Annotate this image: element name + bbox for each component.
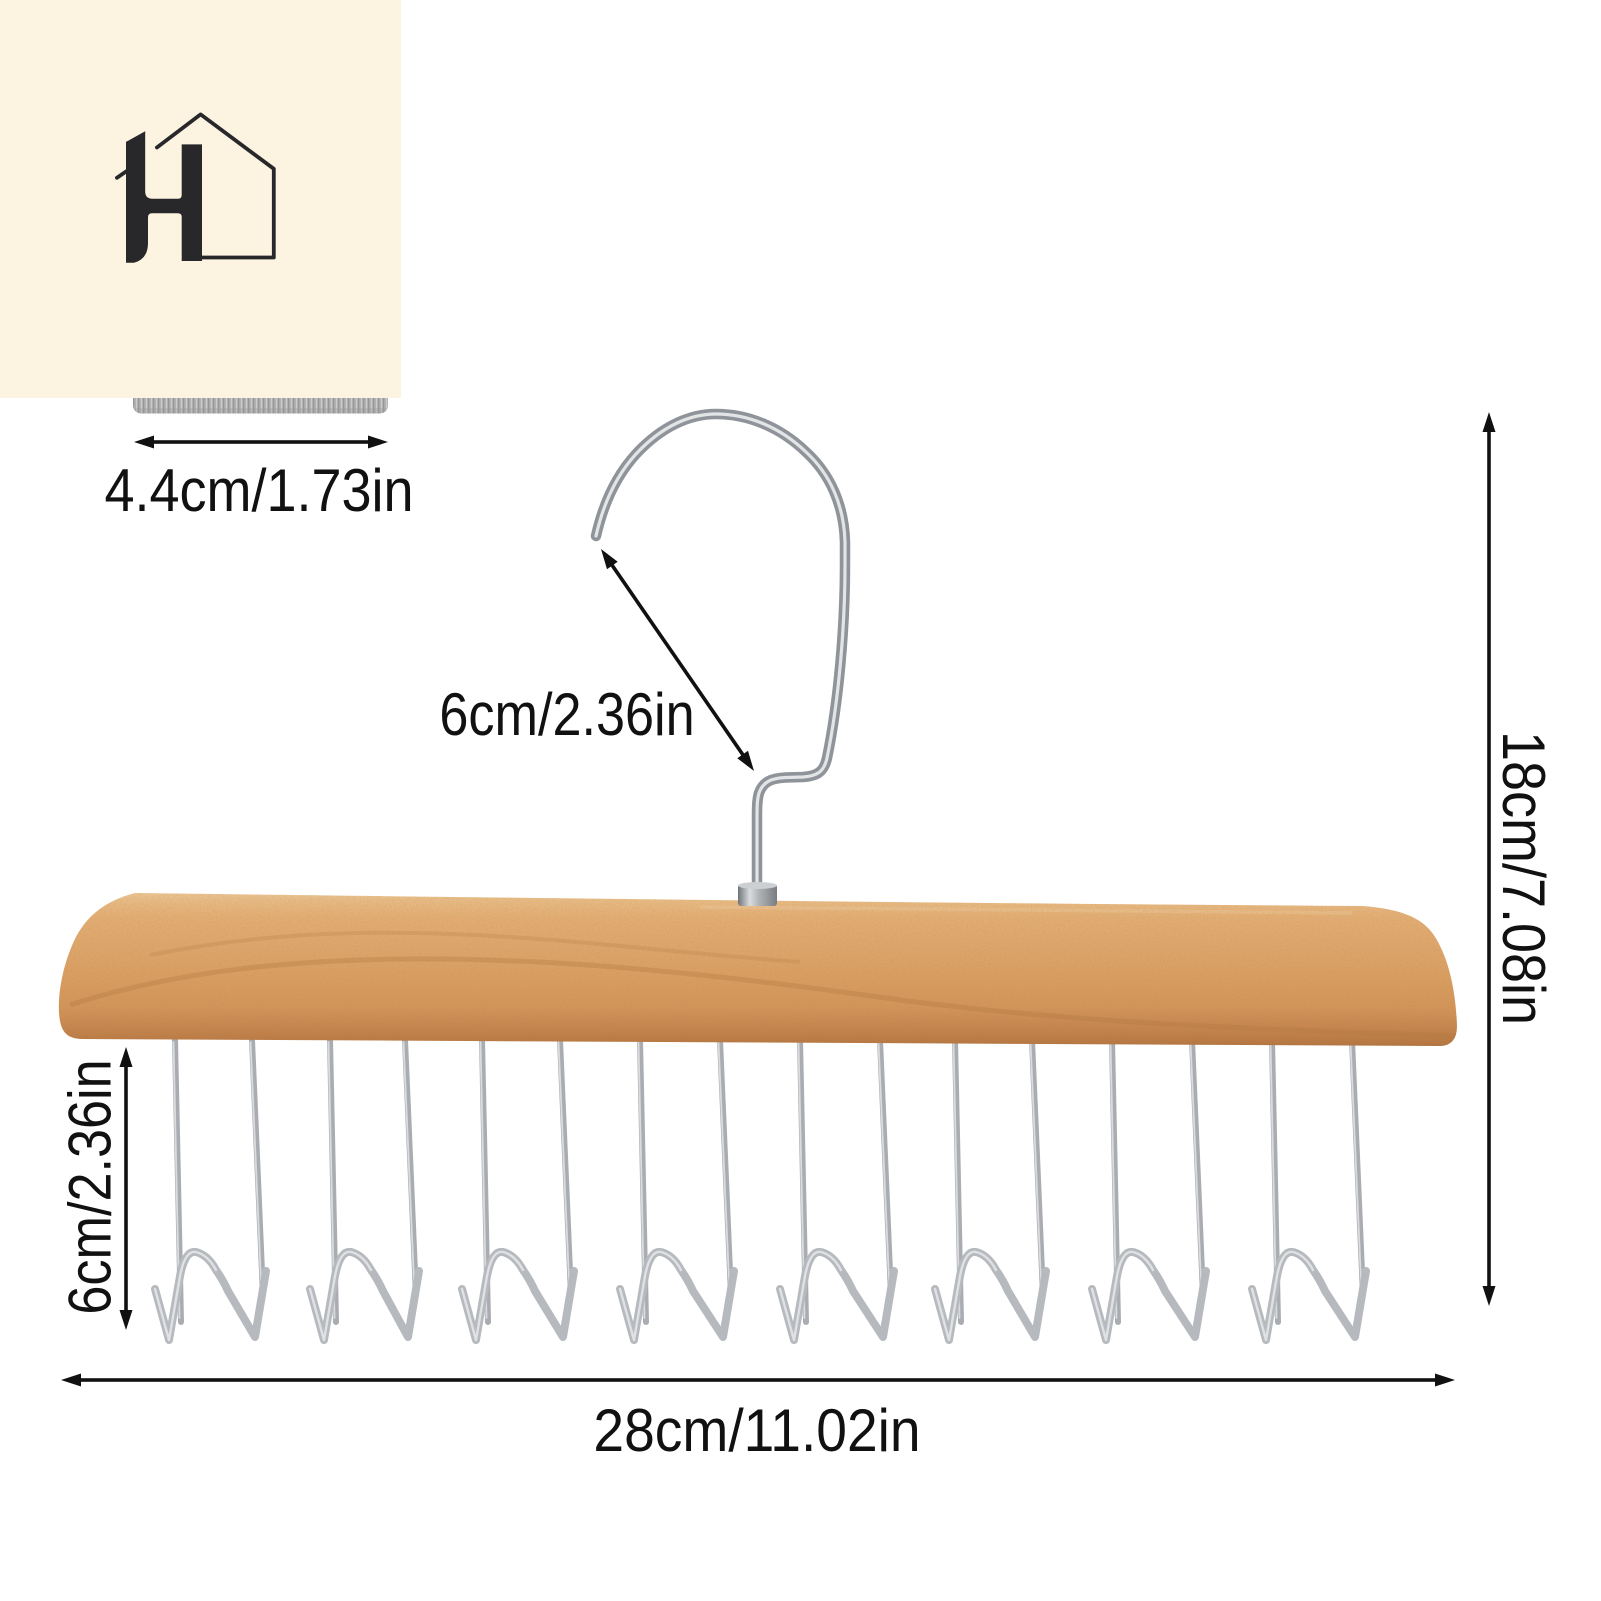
svg-text:28cm/11.02in: 28cm/11.02in — [593, 1398, 920, 1465]
svg-text:6cm/2.36in: 6cm/2.36in — [439, 681, 694, 748]
svg-text:6cm/2.36in: 6cm/2.36in — [56, 1059, 123, 1314]
svg-text:18cm/7.08in: 18cm/7.08in — [1489, 731, 1556, 1025]
svg-text:4.4cm/1.73in: 4.4cm/1.73in — [104, 457, 413, 524]
